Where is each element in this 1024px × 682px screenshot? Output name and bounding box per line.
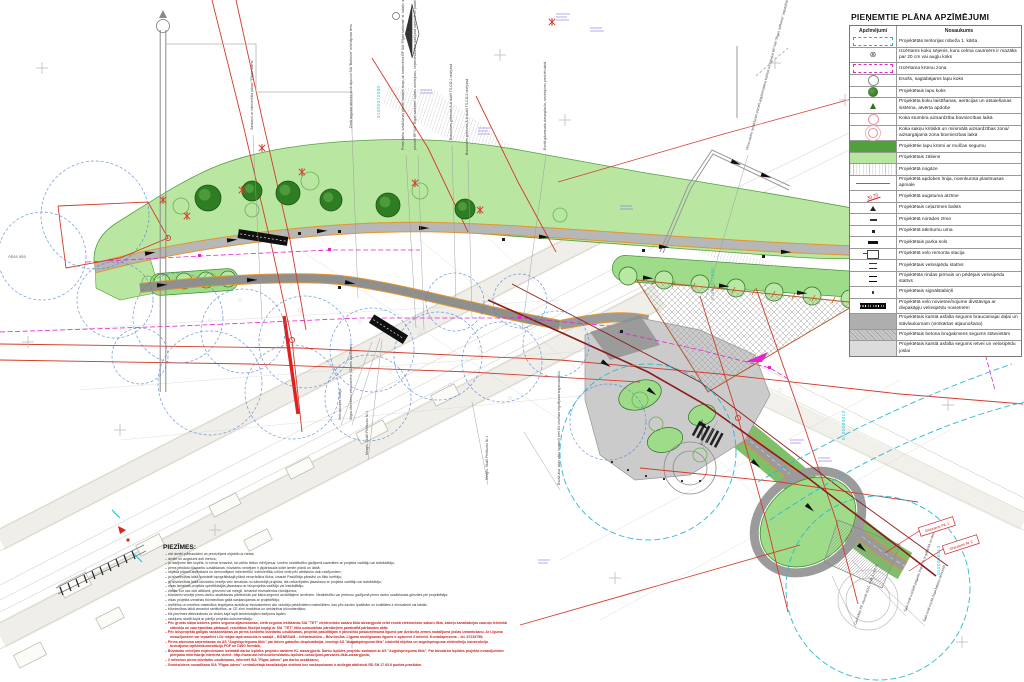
legend-symbol-cell: ⊗ [850,48,897,62]
legend-row: Koka sakņu kritiskā un minimālā aizsardz… [850,125,1021,140]
parcel-number-label: 01000372080 [376,85,381,118]
legend-symbol-cell [850,37,897,48]
legend-existtree-icon [868,75,879,86]
legend-rootzone-icon [868,128,878,138]
projected-tree-highlight [280,185,291,196]
legend-row-label: Projektētais lapu koks [897,87,1021,98]
callout-label: Esošā aka, akas vāku nomainīt pret 40t i… [557,371,561,485]
legend-symbol-cell [850,237,897,248]
callout-label: Velo apkopes stacija [338,389,342,420]
legend-repair-icon [867,250,879,259]
callout-label: Mezgls. Skatīt Pielikumu Nr.1 [485,436,489,480]
legend-standfl-icon [869,276,877,282]
notes-heading: PIEZĪMES: [163,544,507,551]
legend-fell-icon: ⊗ [870,51,877,59]
legend-row-label: Esošs, saglabājams lapu koks [897,75,1021,86]
legend-symbol-cell [850,153,897,164]
legend-bollard-icon [872,291,874,293]
note-line: – Gruntsūdens novadīšana SIA "Rīgas ūden… [163,663,507,668]
callout-label: precizēt RP SIA "Rīgas satiksme" kabeļu … [413,0,417,150]
callout-label: Cietā seguma izbūves zonā atjaunot SIA "… [349,24,353,128]
legend-row: Koka stumbra aizsardzība būvniecības lai… [850,113,1021,125]
legend-symbol-cell [850,287,897,298]
legend-row: Izcērtama krūmu zona [850,62,1021,74]
legend-row-label: Projektētās teritorijas robeža 1. kārta [897,37,1021,48]
grid-cross-icon [114,424,126,436]
legend-curb-icon [856,183,890,184]
legend-symbol-cell [850,203,897,214]
legend-row-label: Koka stumbra aizsardzība būvniecības lai… [897,114,1021,125]
legend-row: Projektētā velo novietne/nojume divstāvī… [850,298,1021,313]
callout-label: Mezgls. Skatīt Pielikumu Nr.1 [365,411,369,455]
legend-row: Projektēta koku laistīšanas, aerācijas u… [850,97,1021,112]
legend-symbol-cell [850,63,897,74]
callout-label: Šajā zonā esošā žoga balstus demontēt [921,564,946,622]
legend-row: Projektētie lapu krūmi ar mulčas segumu [850,140,1021,152]
legend-header-symbol: Apzīmējumi [850,26,897,37]
legend-row-label: Projektētās rindas pirmais un pēdējais v… [897,272,1021,286]
callout-label: Brauktuves griezums A-A skatīt TS-CO-1 r… [449,64,453,140]
legend-row-label: Projektētā atkritumu urna [897,226,1021,237]
legend-asphdrive-icon [850,314,896,328]
callout-label: Griezums A-B1-1 [700,419,704,445]
legend-row-label: Projektētā apdobes līnija, noenkurota pl… [897,176,1021,190]
legend-symbol-cell [850,260,897,271]
legend-symbol-cell [850,164,897,175]
notes-block: PIEZĪMES: – visi izmēri pārbaudāmi un pr… [163,544,507,667]
legend-elev-icon: 30,70 [866,192,881,202]
parcel-number-label: 0100000013 [936,545,941,575]
legend-row-label: Izcērtama krūmu zona [897,63,1021,74]
legend-row: Esošs, saglabājams lapu koks [850,74,1021,86]
legend-bench-icon [868,241,878,245]
callout-label: Pirms darbu uzsākšanas pārcelt sadales s… [401,0,405,150]
legend-row-label: Projektētā augstuma atzīme [897,191,1021,202]
projected-tree-highlight [458,202,467,211]
legend-row: ⊗Izcērtams koku sējenis, kura celma caur… [850,47,1021,62]
legend-row: Projektētais lapu koks [850,86,1021,98]
grid-cross-icon [942,399,954,411]
legend-symbol-cell [850,314,897,328]
felling-mark-icon [259,144,265,152]
legend-row: Projektētais signālstabiņš [850,286,1021,298]
section-label-box: Grieziens PK 1 [918,517,955,537]
legend-symbol-cell [850,341,897,355]
legend-row: Projektētais zāliens [850,152,1021,164]
note-line: – Būvdarbu veicējam nepieciešams izstrād… [163,649,507,658]
legend-header-row: Apzīmējumi Nosaukums [850,26,1021,37]
legend-symbol-cell: 30,70 [850,191,897,202]
legend-header-name: Nosaukums [897,26,1021,37]
legend-row-label: Izcērtams koku sējenis, kura celma caurm… [897,48,1021,62]
legend-watering-icon [870,103,876,109]
callout-label: Segta divvirzienu velonovietne (32 velo … [349,344,353,420]
legend-lawn-icon [850,153,896,164]
note-line: – Pēc būvprojekta galīgās saskaņošanas u… [163,630,507,639]
legend-row-label: Projektētais karstā asfalta segums ietve… [897,341,1021,355]
legend-row: Projektētā apdobes līnija, noenkurota pl… [850,175,1021,190]
legend-row-label: Projektētā velo novietne/nojume divstāvī… [897,299,1021,313]
legend-symbol-cell [850,141,897,152]
legend-row-label: Projektētā velo remonta stacija [897,249,1021,260]
legend-title: PIEŅEMTIE PLĀNA APZĪMĒJUMI [851,12,1022,22]
projected-tree-highlight [245,184,254,193]
legend-row-label: Koka sakņu kritiskā un minimālā aizsardz… [897,126,1021,140]
legend-row: Projektētā atkritumu urna [850,225,1021,237]
legend-row: Projektētais velosipēdu statīvs [850,259,1021,271]
legend-asphpath-icon [850,341,896,355]
legend-panel: PIEŅEMTIE PLĀNA APZĪMĒJUMI Apzīmējumi No… [849,10,1022,357]
legend-boundary-icon [853,37,893,46]
projected-tree-highlight [199,189,211,201]
legend-row-label: Projektēta koku laistīšanas, aerācijas u… [897,98,1021,112]
legend-row-label: Projektētais karstā asfalta segums brauc… [897,314,1021,328]
tree-protection-circle [201,289,285,373]
legend-row: 30,70Projektētā augstuma atzīme [850,190,1021,202]
legend-row-label: Projektētais betona bruģakmens segums st… [897,330,1021,341]
parcel-number-label: 01000372080 [710,267,715,300]
plan-sheet: { "legend": { "title": "PIEŅEMTIE PLĀNA … [0,0,1024,682]
legend-row-label: Projektētais ceļazīmes balsts [897,203,1021,214]
legend-row: Projektētās rindas pirmais un pēdējais v… [850,271,1021,286]
legend-row: Projektētais parka sols [850,236,1021,248]
grid-cross-icon [559,114,571,126]
grid-cross-icon [956,636,968,648]
street-name-labels: Akas iela [8,254,26,259]
legend-shrubzone-icon [853,64,893,73]
legend-row: Projektētais karstā asfalta segums brauc… [850,313,1021,328]
grid-cross-icon [494,49,506,61]
legend-row-label: Projektētais parka sols [897,237,1021,248]
legend-row-label: Projektētā nogāze [897,164,1021,175]
legend-symbol-cell [850,98,897,112]
legend-row: Projektētais karstā asfalta segums ietve… [850,340,1021,355]
legend-symbol-cell [850,75,897,86]
grid-cross-icon [22,336,34,348]
legend-symbol-cell [850,330,897,341]
legend-row: Projektētā nogāze [850,163,1021,175]
legend-slope-icon [850,164,896,175]
legend-symbol-cell [850,114,897,125]
note-line: – Pirms atzinuma saņemšanas no AS "Augst… [163,640,507,649]
projected-tree-highlight [323,192,333,202]
legend-row-label: Projektētie lapu krūmi ar mulčas segumu [897,141,1021,152]
legend-row-label: Projektētais velosipēdu statīvs [897,260,1021,271]
legend-symbol-cell [850,214,897,225]
parcel-number-label: 0100000013 [841,410,846,440]
legend-row: Projektētā norādes zīme [850,213,1021,225]
legend-paver-icon [850,330,896,341]
legend-row: Projektētā velo remonta stacija [850,248,1021,260]
legend-symbol-cell [850,299,897,313]
legend-symbol-cell [850,176,897,190]
section-label-box: Grieziens Nr 2 [942,535,979,555]
street-name-label: Akas iela [8,254,26,259]
legend-table: Apzīmējumi Nosaukums Projektētās teritor… [849,25,1022,357]
legend-roadsign-icon [870,219,877,221]
projected-tree-highlight [380,197,391,208]
legend-symbol-cell [850,226,897,237]
legend-signpost-icon [870,206,876,211]
legend-projtree-icon [868,87,878,97]
callout-label: Pirms darbu uzsākšanas pārcelt apgaismoj… [745,0,790,150]
legend-row: Projektētais betona bruģakmens segums st… [850,329,1021,341]
callout-label: Esošā gāzesvada aizsargčaula, novietojum… [543,62,547,150]
felling-mark-icon [549,18,555,26]
callout-label: Brauktuves griezums A-A skatīt TS-CO-3 r… [465,79,469,155]
legend-row: Projektētās teritorijas robeža 1. kārta [850,37,1021,48]
legend-symbol-cell [850,87,897,98]
legend-row-label: Projektētais signālstabiņš [897,287,1021,298]
legend-row-label: Projektētais zāliens [897,153,1021,164]
callout-label: Saskaņot ar inženiertīkla pārzini "Rīgas… [250,59,254,130]
legend-symbol-cell [850,272,897,286]
legend-symbol-cell [850,126,897,140]
grid-cross-icon [36,62,48,74]
tree-protection-circle [112,328,168,384]
legend-urn-icon [872,230,875,233]
legend-row-label: Projektētā norādes zīme [897,214,1021,225]
legend-row: Projektētais ceļazīmes balsts [850,202,1021,214]
legend-shelter-icon [860,303,886,309]
legend-symbol-cell [850,249,897,260]
note-line: – Pēc grunts slāņa izbūves pirms seguma … [163,621,507,630]
grid-cross-icon [609,572,621,584]
legend-shrubs-icon [850,141,896,152]
legend-stand-icon [869,263,877,269]
legend-trunkprot-icon [868,114,879,125]
